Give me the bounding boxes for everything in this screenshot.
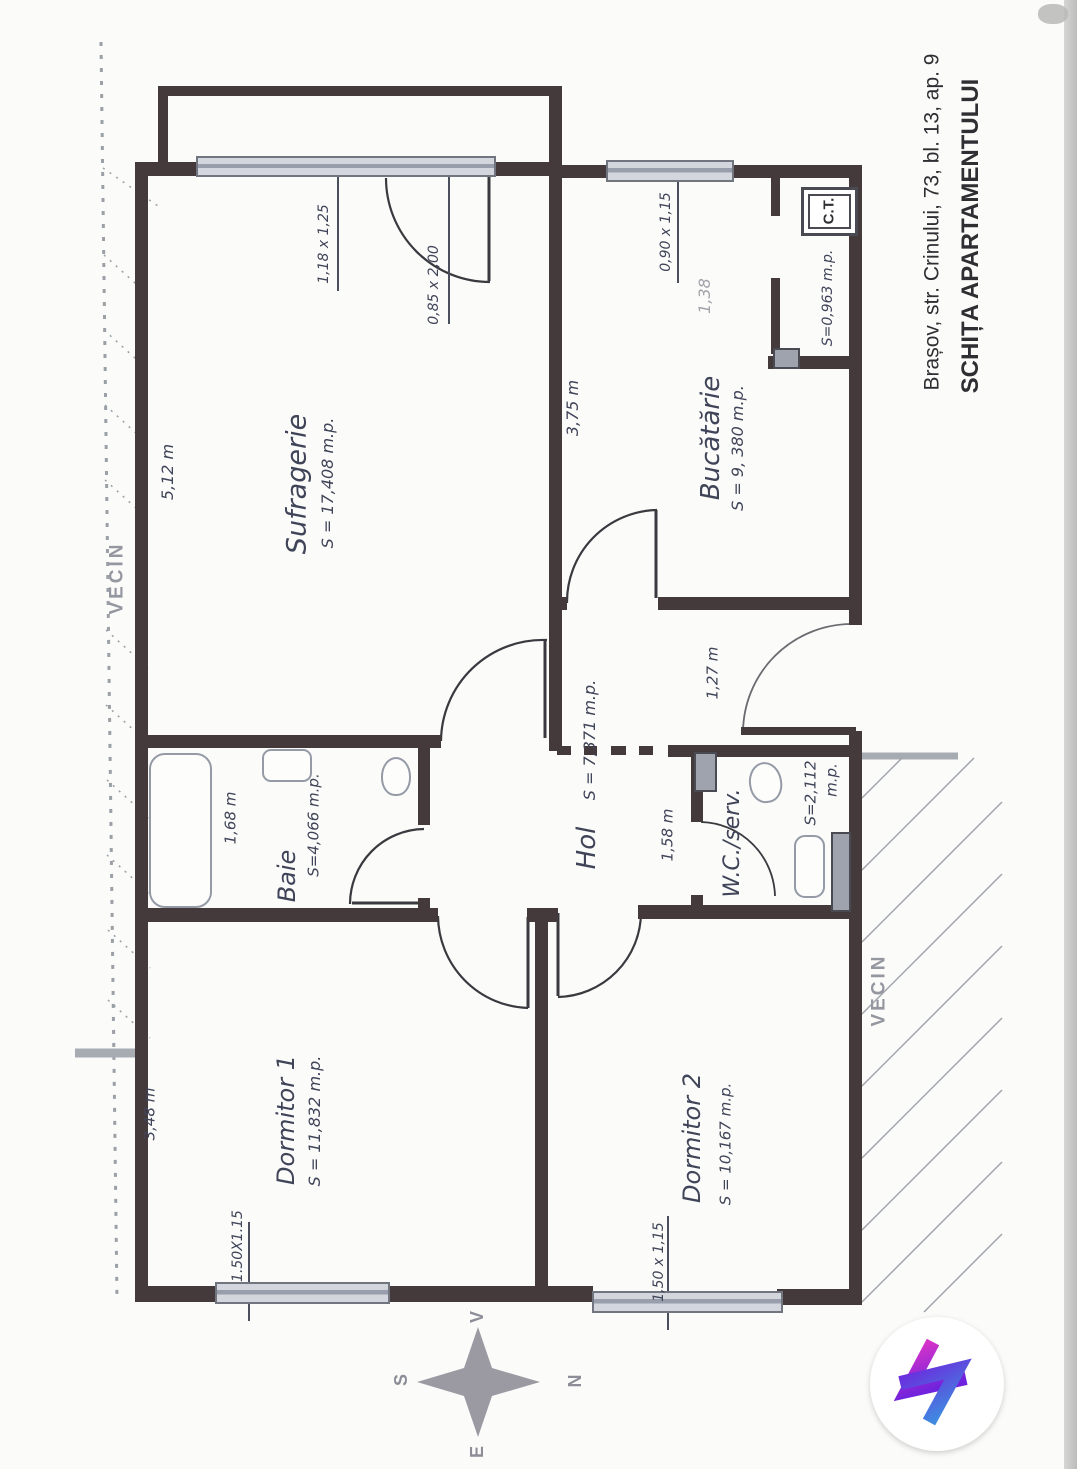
right-neighbor-hatch bbox=[858, 756, 1002, 1312]
room-label-bucatarie: Bucătărie bbox=[698, 376, 724, 501]
niche-width-label: 1,38 bbox=[697, 278, 713, 314]
room-area-dormitor2: S = 10,167 m.p. bbox=[719, 1083, 734, 1206]
compass-west: V bbox=[468, 1311, 486, 1323]
wall-bottom-a bbox=[135, 1286, 217, 1302]
room-area-hol: S = 7,371 m.p. bbox=[582, 680, 598, 801]
entrance-door-arc bbox=[743, 624, 851, 732]
dormitor1-door-arc bbox=[438, 916, 528, 1008]
window-label-dormitor2: 1,50 x 1,15 bbox=[652, 1222, 666, 1302]
dim-sufragerie-width: 5,12 m bbox=[160, 444, 176, 500]
hall-boundary-dash bbox=[611, 746, 626, 755]
niche-shaft-block bbox=[773, 348, 800, 369]
scan-blob bbox=[1038, 4, 1068, 24]
wall-dormitor-divider bbox=[535, 908, 548, 1300]
window-dormitor2 bbox=[592, 1291, 783, 1313]
dormitor2-door-arc bbox=[558, 913, 641, 997]
wc-shaft-right bbox=[831, 832, 851, 912]
wall-right-upper bbox=[849, 176, 862, 625]
wall-bucatarie-bottom-b bbox=[658, 597, 862, 610]
compass-south: S bbox=[392, 1374, 410, 1386]
wall-niche-left bbox=[771, 278, 780, 354]
floor-plan-scan: C.T. Sufragerie S = 17,408 m.p. Bucătări… bbox=[0, 0, 1077, 1469]
dim-bucatarie-width: 3,75 m bbox=[565, 380, 581, 436]
room-label-wc: W.C./serv. bbox=[722, 789, 744, 898]
compass-star bbox=[417, 1327, 540, 1437]
sufragerie-door-arc bbox=[441, 640, 547, 741]
wall-divider-sufragerie-bucatarie bbox=[549, 86, 562, 751]
window-label-bucatarie: 0,90 x 1,15 bbox=[659, 192, 673, 272]
niche-area-label: S=0,963 m.p. bbox=[821, 250, 835, 347]
wall-balcony-left bbox=[158, 86, 168, 170]
hall-boundary-dash bbox=[557, 746, 571, 755]
dim-baie-width: 1,68 m bbox=[224, 792, 239, 845]
document-title: SCHIȚA APARTAMENTULUI bbox=[959, 79, 983, 394]
room-area-bucatarie: S = 9, 380 m.p. bbox=[730, 385, 746, 511]
compass-north: N bbox=[566, 1375, 584, 1388]
compass-east: E bbox=[468, 1446, 486, 1458]
dim-hall-width: 1,58 m bbox=[661, 809, 676, 862]
wall-niche-left-stub bbox=[771, 176, 780, 216]
watermark-logo bbox=[870, 1317, 1004, 1451]
room-label-sufragerie: Sufragerie bbox=[284, 414, 311, 554]
baie-toilet bbox=[381, 757, 411, 796]
bucatarie-door-arc bbox=[567, 510, 657, 603]
wc-shaft-top bbox=[694, 752, 717, 792]
window-dormitor1 bbox=[215, 1282, 390, 1304]
room-area-sufragerie: S = 17,408 m.p. bbox=[320, 418, 336, 549]
window-label-dormitor1: 1.50X1.15 bbox=[231, 1210, 245, 1282]
ct-label: C.T. bbox=[822, 198, 837, 225]
room-label-hol: Hol bbox=[574, 827, 600, 870]
wall-right-lower bbox=[849, 731, 862, 1305]
room-label-baie: Baie bbox=[275, 850, 299, 903]
baie-door-arc bbox=[350, 829, 424, 904]
wall-wc-bottom bbox=[638, 905, 862, 919]
room-area-dormitor1: S = 11,832 m.p. bbox=[307, 1056, 323, 1187]
wc-sink bbox=[794, 835, 825, 898]
window-label-balcony-door: 0,85 x 2,00 bbox=[427, 245, 441, 325]
document-address: Brașov, str. Crinului, 73, bl. 13, ap. 9 bbox=[922, 54, 943, 391]
wall-hall-bottom-a bbox=[135, 908, 438, 922]
room-label-dormitor2: Dormitor 2 bbox=[680, 1073, 704, 1203]
wall-bucatarie-bottom-a bbox=[549, 597, 567, 610]
room-area-wc: S=2,112 bbox=[804, 760, 819, 825]
window-sufragerie bbox=[196, 156, 496, 177]
hall-boundary-dash bbox=[639, 746, 653, 755]
wall-sufragerie-bottom bbox=[135, 735, 441, 748]
bathtub bbox=[149, 753, 212, 908]
wall-baie-right-upper bbox=[418, 745, 430, 825]
window-label-sufragerie: 1,18 x 1,25 bbox=[317, 204, 331, 284]
wall-balcony-top bbox=[158, 86, 562, 96]
wall-wc-left-stub bbox=[691, 895, 703, 917]
entrance-door-leaf bbox=[741, 727, 856, 735]
dim-dormitor1-width: 3,48 m bbox=[143, 1088, 158, 1141]
neighbor-label-right: VECIN bbox=[870, 953, 889, 1026]
dim-corridor-width: 1,27 m bbox=[706, 647, 721, 700]
room-label-dormitor1: Dormitor 1 bbox=[274, 1055, 298, 1185]
window-bucatarie bbox=[606, 160, 734, 182]
scan-edge-band bbox=[1064, 0, 1077, 1469]
neighbor-label-left: VECIN bbox=[108, 541, 127, 614]
wall-bottom-b bbox=[385, 1286, 593, 1302]
room-area-unit-wc: m.p. bbox=[825, 763, 840, 797]
room-area-baie: S=4,066 m.p. bbox=[307, 773, 322, 876]
